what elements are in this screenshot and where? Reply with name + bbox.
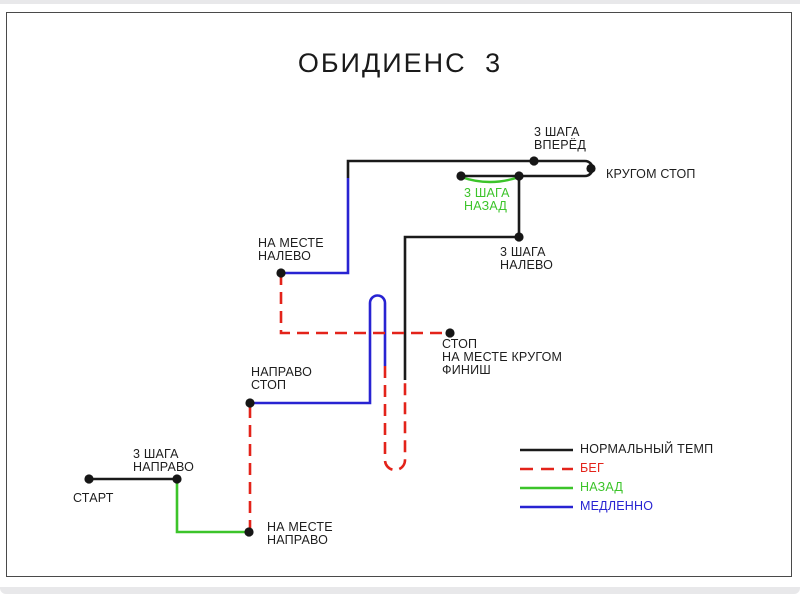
legend-label-run: БЕГ <box>580 462 604 475</box>
label-steps-forward: 3 ШАГА ВПЕРЁД <box>534 126 586 152</box>
label-steps-left: 3 ШАГА НАЛЕВО <box>500 246 553 272</box>
dot-steps-right <box>172 474 181 483</box>
legend-label-normal: НОРМАЛЬНЫЙ ТЕМП <box>580 443 713 456</box>
label-around-stop: КРУГОМ СТОП <box>606 168 696 181</box>
dot-steps-forward <box>529 156 538 165</box>
dot-around-stop <box>586 164 595 173</box>
path-run-finish <box>281 273 450 333</box>
label-steps-right: 3 ШАГА НАПРАВО <box>133 448 194 474</box>
dot-start <box>84 474 93 483</box>
dot-steps-back-end <box>514 171 523 180</box>
label-in-place-left: НА МЕСТЕ НАЛЕВО <box>258 237 324 263</box>
dot-steps-back-start <box>456 171 465 180</box>
path-normal-top <box>348 161 593 178</box>
label-stop-finish: СТОП НА МЕСТЕ КРУГОМ ФИНИШ <box>442 338 562 377</box>
legend-label-slow: МЕДЛЕННО <box>580 500 653 513</box>
dot-right-stop <box>245 398 254 407</box>
path-back-bottom <box>177 479 249 532</box>
legend-label-back: НАЗАД <box>580 481 623 494</box>
label-right-stop: НАПРАВО СТОП <box>251 366 312 392</box>
obedience-course-page: ОБИДИЕНС 3 <box>0 0 800 594</box>
label-steps-back: 3 ШАГА НАЗАД <box>464 187 510 213</box>
course-diagram <box>0 0 800 594</box>
dot-steps-left <box>514 232 523 241</box>
dot-in-place-right <box>244 527 253 536</box>
dot-in-place-left <box>276 268 285 277</box>
label-in-place-right: НА МЕСТЕ НАПРАВО <box>267 521 333 547</box>
label-start: СТАРТ <box>73 492 114 505</box>
path-back-arc <box>461 177 519 182</box>
path-run-u-turn <box>385 366 405 470</box>
